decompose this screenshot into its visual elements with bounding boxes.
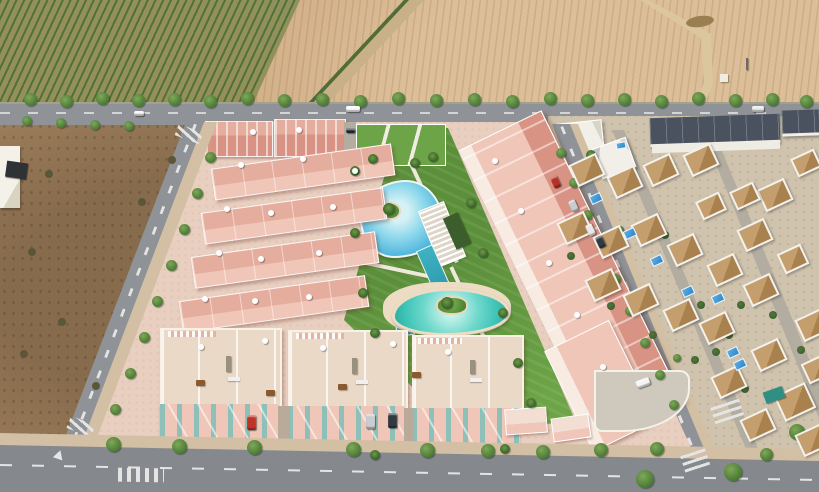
car-sprite [568, 199, 579, 213]
parasol-sprite [202, 296, 208, 302]
palm-sprite [350, 228, 360, 238]
villa-sprite [606, 165, 643, 199]
villa-sprite [682, 143, 719, 177]
tree-sprite [506, 95, 519, 108]
block-sprite [470, 360, 475, 374]
tree-sprite [90, 120, 100, 130]
parasol-sprite [300, 156, 306, 162]
villa-sprite [666, 233, 703, 267]
parasol-sprite [445, 349, 451, 355]
bush-sprite [649, 331, 657, 339]
tree-sprite [179, 224, 190, 235]
tree-sprite [132, 94, 145, 107]
palm-sprite [370, 450, 380, 460]
tree-sprite [468, 93, 481, 106]
bush-sprite [797, 346, 805, 354]
bench-sprite [356, 380, 368, 384]
parasol-sprite [224, 206, 230, 212]
palm-sprite [368, 154, 378, 164]
tree-sprite [655, 370, 665, 380]
tree-sprite [346, 442, 361, 457]
palm-sprite [478, 248, 488, 258]
villa-sprite [729, 181, 761, 210]
car-sprite [388, 413, 397, 428]
car-sprite [134, 111, 144, 116]
tree-sprite [96, 92, 109, 105]
bush-sprite [138, 198, 146, 206]
villa-sprite [662, 298, 699, 332]
table-sprite [412, 372, 421, 378]
tree-sprite [316, 93, 329, 106]
tree-sprite [673, 354, 681, 362]
tree-sprite [278, 94, 291, 107]
sprite-layer [0, 0, 819, 492]
tree-sprite [618, 93, 631, 106]
pool-sprite [589, 192, 604, 205]
villa-sprite [736, 218, 773, 252]
parasol-sprite [250, 129, 256, 135]
tree-sprite [420, 443, 435, 458]
parasol-sprite [546, 260, 552, 266]
parasol-sprite [518, 208, 524, 214]
pool-sprite [733, 358, 748, 371]
pool-sprite [681, 285, 696, 298]
tree-sprite [24, 93, 37, 106]
palm-sprite [498, 308, 508, 318]
villa-sprite [698, 311, 735, 345]
parasol-sprite [238, 162, 244, 168]
bush-sprite [58, 318, 66, 326]
parasol-sprite [296, 127, 302, 133]
palm-sprite [383, 203, 395, 215]
car-sprite [366, 414, 375, 429]
block-sprite [720, 74, 728, 82]
tree-sprite [60, 95, 73, 108]
parasol-sprite [352, 168, 358, 174]
tree-sprite [594, 443, 608, 457]
parasol-sprite [600, 364, 606, 370]
table-sprite [338, 384, 347, 390]
pool-sprite [650, 254, 665, 267]
tree-sprite [56, 118, 66, 128]
car-sprite [635, 377, 651, 389]
tree-sprite [650, 442, 664, 456]
palm-sprite [441, 297, 453, 309]
pool-sprite [726, 346, 741, 359]
bush-sprite [92, 382, 100, 390]
tree-sprite [110, 404, 121, 415]
block-sprite [352, 358, 357, 374]
tree-sprite [247, 440, 262, 455]
blob-sprite [685, 14, 714, 29]
villa-sprite [710, 365, 747, 399]
tree-sprite [192, 188, 203, 199]
bench-sprite [228, 377, 240, 381]
bush-sprite [567, 252, 575, 260]
aerial-scene [0, 0, 819, 492]
tree-sprite [636, 470, 654, 488]
villa-sprite [695, 191, 727, 220]
tree-sprite [729, 94, 742, 107]
palm-sprite [466, 198, 476, 208]
bush-sprite [607, 302, 615, 310]
bush-sprite [769, 311, 777, 319]
parasol-sprite [216, 250, 222, 256]
car-sprite [752, 106, 764, 112]
parasol-sprite [198, 344, 204, 350]
palm-sprite [526, 398, 536, 408]
tree-sprite [766, 93, 779, 106]
car-sprite [550, 175, 561, 189]
villa-sprite [742, 273, 779, 307]
villa-sprite [756, 178, 793, 212]
tree-sprite [760, 448, 773, 461]
car-sprite [346, 106, 360, 112]
tree-sprite [139, 332, 150, 343]
tree-sprite [655, 95, 668, 108]
tree-sprite [692, 92, 705, 105]
villa-sprite [642, 153, 679, 187]
tree-sprite [205, 152, 216, 163]
palm-sprite [358, 288, 368, 298]
tree-sprite [172, 439, 187, 454]
tree-sprite [241, 92, 254, 105]
parasol-sprite [258, 256, 264, 262]
tree-sprite [124, 121, 134, 131]
bush-sprite [45, 170, 53, 178]
pool-sprite [615, 141, 626, 150]
palm-sprite [500, 444, 510, 454]
villa-sprite [777, 244, 810, 275]
parasol-sprite [306, 294, 312, 300]
bush-sprite [737, 301, 745, 309]
palm-sprite [428, 152, 438, 162]
tree-sprite [544, 92, 557, 105]
villa-sprite [801, 354, 819, 385]
villa-sprite [630, 213, 667, 247]
palm-sprite [410, 158, 420, 168]
tree-sprite [640, 338, 650, 348]
bush-sprite [712, 348, 720, 356]
tree-sprite [168, 93, 181, 106]
parasol-sprite [390, 341, 396, 347]
bench-sprite [470, 378, 482, 382]
tree-sprite [556, 148, 566, 158]
pool-sprite [711, 292, 726, 305]
tree-sprite [669, 400, 679, 410]
tree-sprite [724, 463, 742, 481]
table-sprite [266, 390, 275, 396]
tree-sprite [800, 95, 813, 108]
parasol-sprite [492, 158, 498, 164]
villa-sprite [584, 268, 621, 302]
tree-sprite [581, 94, 594, 107]
tree-sprite [152, 296, 163, 307]
bush-sprite [20, 350, 28, 358]
villa-sprite [739, 408, 776, 442]
parasol-sprite [320, 345, 326, 351]
table-sprite [196, 380, 205, 386]
tree-sprite [536, 445, 550, 459]
parasol-sprite [330, 204, 336, 210]
block-sprite [226, 356, 231, 372]
car-sprite [346, 128, 355, 133]
palm-sprite [513, 358, 523, 368]
tree-sprite [125, 368, 136, 379]
villa-sprite [794, 308, 819, 342]
block-sprite [746, 58, 748, 70]
tree-sprite [430, 94, 443, 107]
car-sprite [247, 415, 256, 430]
tree-sprite [481, 444, 495, 458]
tree-sprite [166, 260, 177, 271]
parasol-sprite [316, 250, 322, 256]
bush-sprite [691, 356, 699, 364]
villa-sprite [750, 338, 787, 372]
bush-sprite [697, 301, 705, 309]
parasol-sprite [574, 312, 580, 318]
parasol-sprite [268, 210, 274, 216]
palm-sprite [370, 328, 380, 338]
villa-sprite [790, 148, 819, 177]
bush-sprite [28, 248, 36, 256]
bush-sprite [168, 156, 176, 164]
villa-sprite [706, 253, 743, 287]
tree-sprite [392, 92, 405, 105]
tree-sprite [204, 95, 217, 108]
parasol-sprite [262, 338, 268, 344]
tree-sprite [106, 437, 121, 452]
tree-sprite [22, 116, 32, 126]
parasol-sprite [252, 298, 258, 304]
